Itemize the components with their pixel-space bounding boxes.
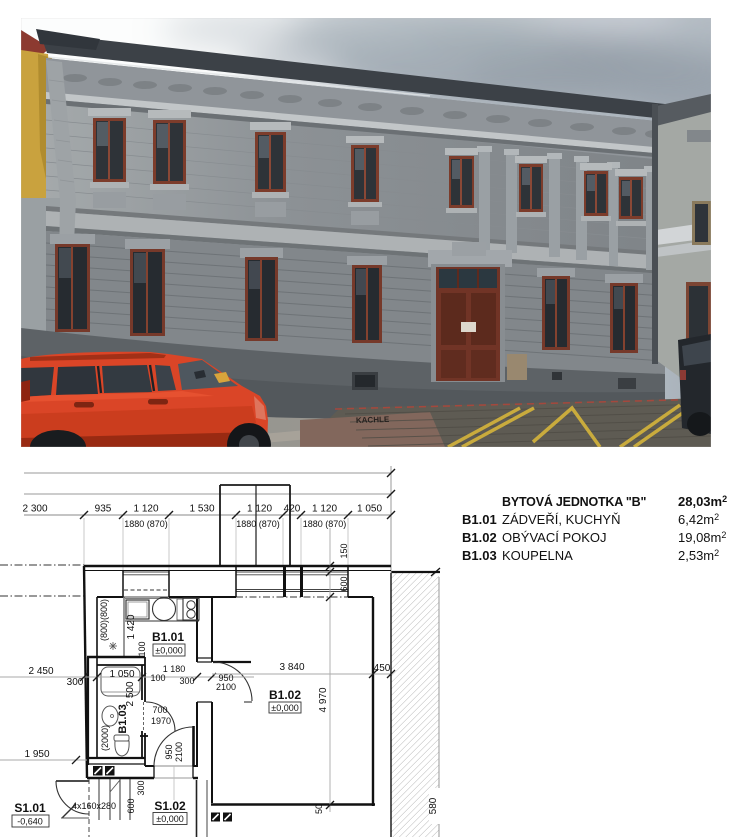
svg-text:28,03m2: 28,03m2	[678, 494, 727, 509]
svg-text:1 120: 1 120	[312, 504, 337, 515]
svg-text:300: 300	[179, 676, 194, 686]
svg-text:-0,640: -0,640	[17, 817, 43, 827]
svg-text:S1.02: S1.02	[154, 799, 186, 813]
svg-text:1 180: 1 180	[163, 664, 186, 674]
svg-text:700: 700	[152, 705, 167, 715]
svg-text:B1.03: B1.03	[117, 704, 129, 733]
svg-text:1880 (870): 1880 (870)	[236, 519, 280, 529]
svg-text:100: 100	[150, 673, 165, 683]
svg-text:B1.01: B1.01	[462, 512, 497, 527]
svg-text:(2000): (2000)	[100, 725, 110, 751]
svg-text:50: 50	[314, 804, 324, 814]
svg-text:1 950: 1 950	[24, 749, 49, 760]
svg-text:300: 300	[136, 780, 146, 795]
svg-text:4 970: 4 970	[318, 687, 329, 712]
svg-text:580: 580	[428, 797, 439, 814]
svg-text:KOUPELNA: KOUPELNA	[502, 548, 573, 563]
svg-text:S1.01: S1.01	[14, 801, 46, 815]
svg-text:935: 935	[95, 504, 112, 515]
svg-text:420: 420	[284, 504, 301, 515]
svg-text:1880 (870): 1880 (870)	[303, 519, 347, 529]
svg-text:1 120: 1 120	[133, 504, 158, 515]
svg-text:B1.02: B1.02	[269, 688, 301, 702]
svg-text:1 530: 1 530	[189, 504, 214, 515]
svg-text:KACHLE: KACHLE	[356, 415, 390, 425]
svg-text:3 840: 3 840	[279, 662, 304, 673]
svg-text:OBÝVACÍ POKOJ: OBÝVACÍ POKOJ	[502, 530, 607, 545]
svg-text:2100: 2100	[216, 682, 236, 692]
svg-text:1 050: 1 050	[109, 669, 134, 680]
svg-text:2,53m2: 2,53m2	[678, 548, 719, 563]
svg-text:(800)(800): (800)(800)	[99, 599, 109, 641]
svg-text:1970: 1970	[151, 716, 171, 726]
svg-text:2 500: 2 500	[125, 681, 136, 706]
svg-text:1 050: 1 050	[357, 504, 382, 515]
svg-text:B1.03: B1.03	[462, 548, 497, 563]
svg-text:2100: 2100	[174, 742, 184, 762]
svg-text:±0,000: ±0,000	[271, 703, 298, 713]
svg-text:1 120: 1 120	[247, 504, 272, 515]
svg-text:4x160x280: 4x160x280	[72, 801, 116, 811]
svg-text:B1.01: B1.01	[152, 630, 184, 644]
svg-text:6,42m2: 6,42m2	[678, 512, 719, 527]
svg-text:2 450: 2 450	[28, 666, 53, 677]
svg-text:150: 150	[339, 543, 349, 558]
svg-text:19,08m2: 19,08m2	[678, 530, 726, 545]
svg-text:300: 300	[67, 677, 84, 688]
svg-text:B1.02: B1.02	[462, 530, 497, 545]
svg-text:100: 100	[137, 641, 147, 656]
svg-text:950: 950	[164, 744, 174, 759]
svg-text:±0,000: ±0,000	[156, 814, 183, 824]
svg-text:600: 600	[339, 576, 349, 591]
svg-text:600: 600	[126, 798, 136, 813]
svg-text:2 300: 2 300	[22, 504, 47, 515]
svg-text:±0,000: ±0,000	[155, 646, 182, 656]
svg-text:ZÁDVEŘÍ, KUCHYŇ: ZÁDVEŘÍ, KUCHYŇ	[502, 512, 620, 527]
svg-text:1880 (870): 1880 (870)	[124, 519, 168, 529]
svg-text:450: 450	[374, 663, 391, 674]
svg-text:1 420: 1 420	[126, 614, 137, 639]
svg-text:BYTOVÁ JEDNOTKA "B": BYTOVÁ JEDNOTKA "B"	[502, 494, 646, 509]
